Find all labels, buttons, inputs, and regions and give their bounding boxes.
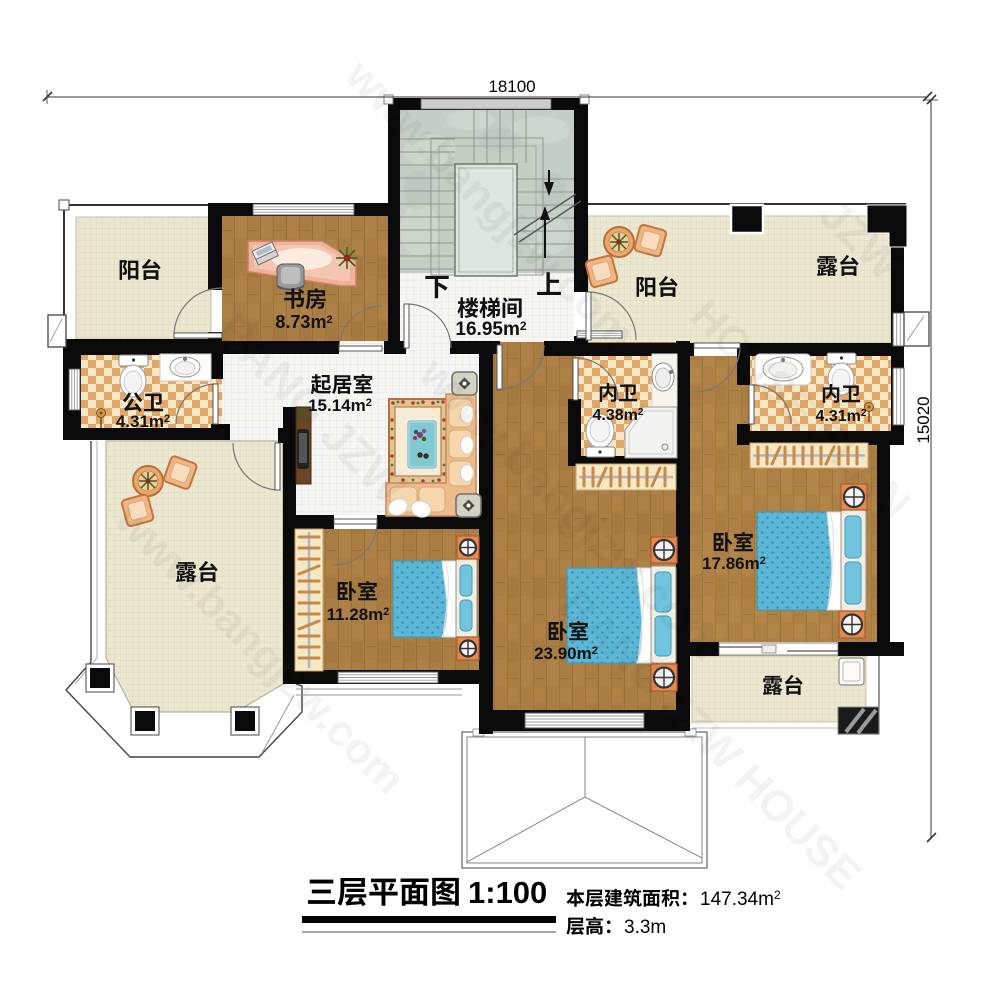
svg-text:8.73m2: 8.73m2: [275, 312, 332, 332]
svg-text:15020: 15020: [914, 396, 933, 443]
svg-text:18100: 18100: [488, 77, 535, 96]
svg-text:3.3m: 3.3m: [624, 917, 666, 938]
svg-text:11.28m2: 11.28m2: [327, 605, 390, 624]
svg-text:4.38m2: 4.38m2: [593, 407, 644, 424]
svg-text:4.31m2: 4.31m2: [116, 412, 170, 431]
svg-text:16.95m2: 16.95m2: [455, 319, 526, 340]
svg-text:147.34m2: 147.34m2: [700, 888, 781, 910]
svg-text:1:100: 1:100: [468, 875, 547, 910]
svg-text:17.86m2: 17.86m2: [702, 554, 766, 573]
